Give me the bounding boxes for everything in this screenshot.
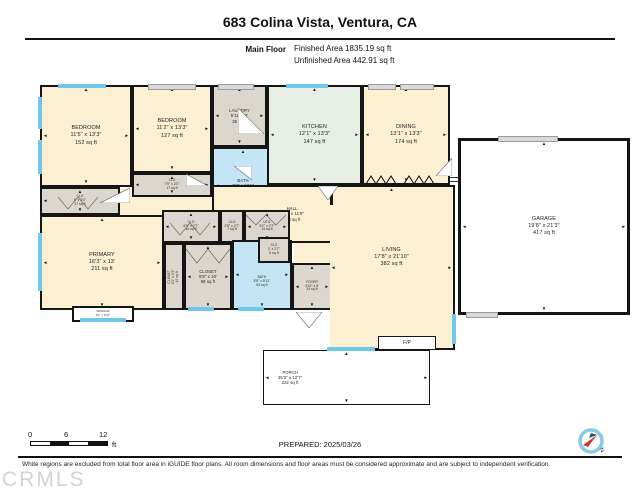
fireplace: F/P [378,336,436,350]
closet-door-icon [186,248,230,264]
window-marker [286,84,328,88]
scale-label-0: 0 [28,430,32,439]
room-area: 222 sq ft [278,380,302,385]
dimension-arrow-icon: ◄ [165,224,169,229]
dimension-arrow-icon: ◄ [43,260,47,265]
room-dims: 16'3" x 13' [89,259,115,266]
room-area: 211 sq ft [89,266,115,273]
disclaimer-text: White regions are excluded from total fl… [22,461,622,468]
room-name: KITCHEN [299,124,330,131]
door-swing-icon [318,186,338,200]
room-area: 152 sq ft [70,140,101,147]
floor-summary: Main Floor Finished Area 1835.19 sq ft U… [0,44,640,65]
room-area: 14 sq ft [259,228,274,232]
crmls-watermark: CRMLS [2,468,86,492]
room-area: 147 sq ft [299,139,330,146]
room-closet-5: CLO2' x 2'7"5 sq ft [258,237,290,263]
dimension-arrow-icon: ▼ [344,399,348,404]
dimension-arrow-icon: ◄ [135,127,139,132]
window-marker-gray [148,84,196,90]
entry-steps-icon [296,312,322,328]
room-porch: PORCH25'3" x 12'7"222 sq ft ▲▼◄► [263,350,430,405]
dimension-arrow-icon: ◄ [215,114,219,119]
dimension-arrow-icon: ◄ [235,273,239,278]
door-swing-icon [238,108,264,134]
dimension-arrow-icon: ► [125,134,129,139]
finished-area: Finished Area 1835.19 sq ft [294,44,395,53]
room-closet-vertical: CLOSET2'2" x 5'9"12 sq ft [164,243,184,310]
room-dims: 17'8" x 21'10" [374,254,409,261]
room-area: 382 sq ft [374,261,409,268]
dimension-arrow-icon: ► [325,284,329,289]
room-foyer: FOYER4'10" x 5'24 sq ft ▲▼◄► [292,263,332,310]
dimension-arrow-icon: ► [157,260,161,265]
room-closet-7: CLO2'9" x 2'7"7 sq ft [220,210,244,243]
prepared-date: PREPARED: 2025/03/26 [0,440,640,449]
window-marker [188,307,214,311]
dimension-arrow-icon: ▼ [237,140,241,145]
dimension-arrow-icon: ▲ [241,150,245,155]
window-marker [58,84,106,88]
dimension-arrow-icon: ► [448,265,452,270]
dimension-arrow-icon: ▲ [389,188,393,193]
zigzag-symbol [404,175,434,185]
dimension-arrow-icon: ▲ [542,142,546,147]
room-area: 7 sq ft [224,228,239,232]
dimension-arrow-icon: ► [213,224,217,229]
hall-open-area [294,243,330,265]
door-swing-icon [234,166,252,180]
dimension-arrow-icon: ◄ [43,134,47,139]
room-primary: PRIMARY16'3" x 13'211 sq ft ▲▼◄► [40,215,164,310]
room-kitchen: KITCHEN12'1" x 13'3"147 sq ft ▲▼◄► [267,85,362,185]
dimension-arrow-icon: ◄ [187,274,191,279]
title-divider [25,38,615,40]
dimension-arrow-icon: ◄ [365,133,369,138]
compass-icon: N [576,426,610,460]
room-name: DINING [390,124,421,131]
room-living: LIVING17'8" x 21'10"382 sq ft ▲▼◄► [330,185,455,350]
footer-divider [18,456,622,458]
scale-label-6: 6 [64,430,68,439]
window-marker [452,314,456,344]
fireplace-label: F/P [403,340,411,346]
dimension-arrow-icon: ▲ [344,352,348,357]
dimension-arrow-icon: ▼ [542,307,546,312]
door-swing-icon [186,174,208,186]
garage-door-marker [498,136,558,142]
room-bedroom-1: BEDROOM11'5" x 13'3"152 sq ft ▲▼◄► [40,85,132,187]
room-bedroom-2: BEDROOM11'2" x 13'3"127 sq ft ▲▼◄► [132,85,212,173]
room-dims: 13'1" x 13'3" [390,131,421,138]
room-area: 53 sq ft [254,284,271,288]
closet-door-icon [170,222,210,236]
dimension-arrow-icon: ► [205,127,209,132]
room-area: 24 sq ft [305,288,319,292]
gate-line [450,181,458,182]
dimension-arrow-icon: ▼ [189,236,193,241]
room-garage: GARAGE19'8" x 21'3"417 sq ft ▲▼◄► [458,138,630,315]
dimension-arrow-icon: ► [225,274,229,279]
dimension-arrow-icon: ▲ [100,218,104,223]
page-title: 683 Colina Vista, Ventura, CA [0,14,640,30]
floor-label: Main Floor [246,44,286,65]
closet-door-icon [58,196,98,210]
room-area: 127 sq ft [156,133,187,140]
dimension-arrow-icon: ▼ [310,303,314,308]
dimension-arrow-icon: ◄ [135,183,139,188]
window-marker [80,318,126,322]
room-area: 69 sq ft [199,279,217,284]
dimension-arrow-icon: ▲ [310,266,314,271]
window-marker-gray [218,84,254,90]
room-dims: 11'5" x 13'3" [70,132,101,139]
room-dims: 19'8" x 21'3" [528,223,559,230]
dimension-arrow-icon: ▲ [84,88,88,93]
dimension-arrow-icon: ▼ [84,180,88,185]
floor-plan-page: 683 Colina Vista, Ventura, CA Main Floor… [0,0,640,495]
room-name: BEDROOM [156,118,187,125]
room-area: 417 sq ft [528,230,559,237]
dimension-arrow-icon: ▼ [170,166,174,171]
dimension-arrow-icon: ◄ [265,375,269,380]
room-area: 12 sq ft [176,269,180,284]
scale-label-12: 12 [99,430,107,439]
zigzag-symbol [366,175,396,185]
room-name: LIVING [374,247,409,254]
room-area: 174 sq ft [390,139,421,146]
room-dims: 12'1" x 13'3" [299,131,330,138]
window-marker [327,347,375,351]
unfinished-area: Unfinished Area 442.91 sq ft [294,56,395,65]
dimension-arrow-icon: ◄ [295,284,299,289]
window-marker [238,307,264,311]
door-swing-icon [436,158,452,176]
room-name: BEDROOM [70,125,101,132]
dimension-arrow-icon: ◄ [270,133,274,138]
room-name: GARAGE [528,216,559,223]
gate-line [450,177,458,178]
window-marker [38,140,42,174]
window-marker [38,97,42,129]
room-name: PRIMARY [89,252,115,259]
dimension-arrow-icon: ► [424,375,428,380]
door-swing-icon [100,188,130,203]
dimension-arrow-icon: ▼ [170,190,174,195]
window-marker-gray [368,84,396,90]
window-marker-gray [400,84,434,90]
window-marker [38,233,42,291]
dimension-arrow-icon: ► [622,224,626,229]
garage-door-marker [466,312,498,318]
dimension-arrow-icon: ▲ [170,176,174,181]
closet-door-icon [246,214,286,226]
dimension-arrow-icon: ◄ [331,265,335,270]
dimension-arrow-icon: ▲ [189,213,193,218]
dimension-arrow-icon: ▼ [312,178,316,183]
room-dims: 11'2" x 13'3" [156,125,187,132]
dimension-arrow-icon: ▲ [78,190,82,195]
dimension-arrow-icon: ◄ [462,224,466,229]
dimension-arrow-icon: ▲ [312,88,316,93]
dimension-arrow-icon: ► [443,133,447,138]
dimension-arrow-icon: ► [355,133,359,138]
dimension-arrow-icon: ► [285,273,289,278]
room-area: 5 sq ft [268,252,280,256]
dimension-arrow-icon: ◄ [43,199,47,204]
